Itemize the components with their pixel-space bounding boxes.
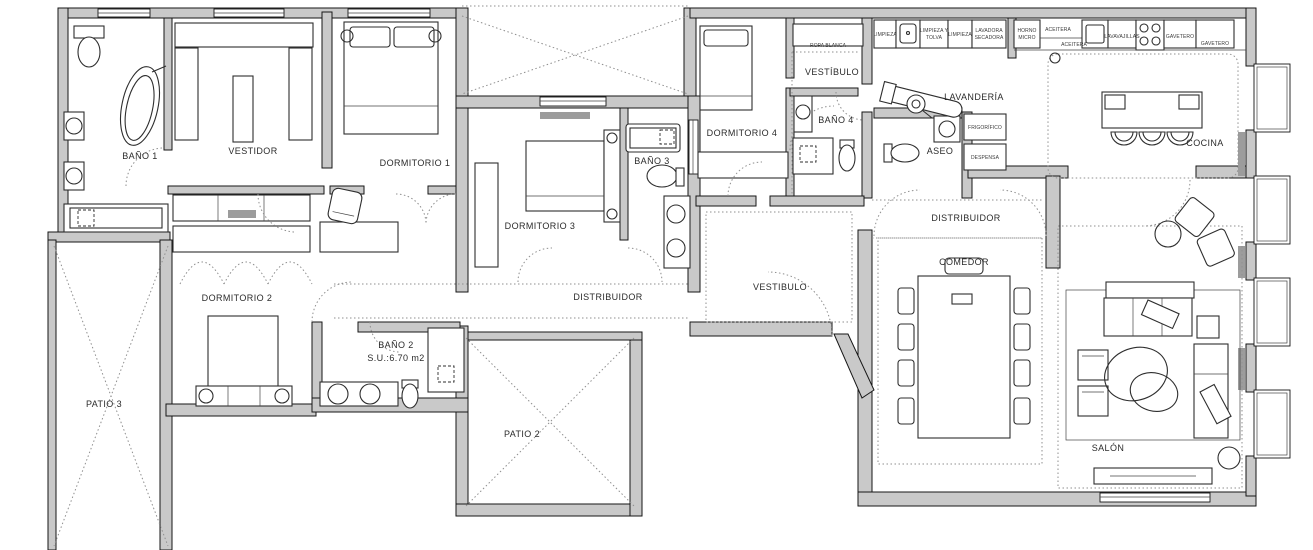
sink-icon	[64, 162, 84, 190]
window-bay	[1254, 176, 1290, 244]
cabinet-label-limpieza2: LIMPIEZA	[948, 32, 972, 38]
room-label-vestidor: VESTIDOR	[228, 146, 277, 156]
room-label-salon: SALÓN	[1092, 443, 1125, 453]
bathtub-icon	[114, 63, 166, 149]
room-label-aseo: ASEO	[927, 146, 954, 156]
toilet-icon	[74, 26, 104, 38]
room-label-vestibulo-center: VESTIBULO	[753, 282, 807, 292]
stool-icon	[1111, 132, 1137, 145]
chair-icon	[898, 398, 914, 424]
room-label-patio3: PATIO 3	[86, 399, 122, 409]
cabinet-label-gavetero1: GAVETERO	[1166, 34, 1194, 40]
toilet-icon	[647, 165, 677, 187]
room-label-dormitorio2: DORMITORIO 2	[202, 293, 273, 303]
window-bay	[1254, 278, 1290, 346]
room-label-bano1: BAÑO 1	[122, 151, 157, 161]
room-label-bano3: BAÑO 3	[634, 156, 669, 166]
rug-icon	[1126, 367, 1182, 416]
door-arc	[396, 194, 426, 224]
cabinet-label-limpieza-tolva-2: TOLVA	[926, 35, 943, 41]
chair-icon	[1014, 288, 1030, 314]
room-label-bano2-su: S.U.:6.70 m2	[367, 353, 424, 363]
cabinet-label-lavavajillas: LAVAVAJILLAS	[1104, 34, 1140, 40]
floor-plan: BAÑO 1 VESTIDOR DORMITORIO 1 DORMITORIO …	[0, 0, 1313, 550]
door-arc	[518, 248, 552, 282]
window	[214, 9, 284, 17]
closet-hatch	[698, 152, 788, 178]
chair-icon	[898, 288, 914, 314]
shower-icon	[793, 138, 833, 174]
room-label-dormitorio4: DORMITORIO 4	[707, 128, 778, 138]
chair-icon	[1014, 360, 1030, 386]
vestidor-island	[233, 76, 253, 142]
dorm1-bed-icon	[341, 22, 441, 134]
cabinet-label-horno: HORNO	[1017, 28, 1036, 34]
dorm3-bed-icon	[526, 112, 620, 222]
cabinet-label-frigorifico: FRIGORÍFICO	[968, 124, 1002, 131]
bano3-fixtures	[626, 124, 690, 268]
windows	[98, 9, 1210, 502]
walls	[48, 8, 1256, 550]
bano4-fixtures	[793, 96, 855, 174]
door-arc	[874, 190, 920, 236]
cabinet-label-limpieza1: LIMPIEZA	[873, 32, 897, 38]
window	[689, 120, 698, 174]
cabinet-label-aceitera2: ACEITERA	[1061, 42, 1087, 48]
window	[1100, 493, 1210, 502]
room-label-dormitorio1: DORMITORIO 1	[380, 158, 451, 168]
rug-icon	[1097, 339, 1175, 410]
sink-icon	[64, 112, 84, 140]
door-arc	[312, 282, 352, 322]
closet-hatch	[173, 226, 310, 252]
window-bay	[1254, 390, 1290, 458]
room-label-distribuidor-right: DISTRIBUIDOR	[931, 213, 1000, 223]
cabinet-label-despensa: DESPENSA	[971, 155, 1000, 161]
bano1-fixtures	[64, 26, 168, 232]
chair-icon	[1014, 398, 1030, 424]
lounge-chair-icon	[1174, 196, 1216, 238]
patio3-cross	[54, 246, 168, 546]
cabinet-label-aceitera1: ACEITERA	[1045, 27, 1071, 33]
closet-hatch	[289, 48, 312, 140]
door-arc	[1000, 190, 1046, 236]
window	[98, 9, 150, 17]
dining-table-icon	[918, 276, 1010, 438]
cabinet-label-gavetero2: GAVETERO	[1201, 41, 1229, 47]
dorm4-bed-icon	[700, 26, 752, 110]
closet-hatch	[475, 163, 498, 267]
patio-top-cross	[462, 6, 688, 94]
cabinet-label-micro: MICRO	[1018, 35, 1035, 41]
sink-icon	[934, 116, 960, 142]
desk-icon	[320, 187, 398, 252]
closet-hatch	[175, 23, 313, 47]
room-label-patio2: PATIO 2	[504, 429, 540, 439]
door-arc	[628, 248, 662, 282]
room-label-lavanderia: LAVANDERÍA	[944, 92, 1004, 102]
door-arc	[426, 194, 456, 224]
hob-icon	[1136, 20, 1164, 50]
floor-plan-drawing: BAÑO 1 VESTIDOR DORMITORIO 1 DORMITORIO …	[0, 0, 1313, 550]
cabinet-label-ropa-blanca: ROPA BLANCA	[810, 43, 847, 49]
armchair-icon	[1078, 386, 1108, 416]
lounge-chair-icon	[1196, 228, 1236, 268]
cabinet-label-secadora: SECADORA	[975, 35, 1004, 41]
window	[540, 97, 606, 106]
cabinet-label-limpieza-tolva-1: LIMPIEZA Y	[920, 28, 949, 34]
chair-icon	[898, 360, 914, 386]
curtain	[1238, 132, 1245, 176]
dining-set	[898, 258, 1030, 438]
room-label-cocina: COCINA	[1186, 138, 1223, 148]
salon-furniture	[1066, 196, 1240, 484]
patio2-cross	[466, 338, 634, 506]
cabinet-label-lavadora: LAVADORA	[975, 28, 1003, 34]
console	[1106, 282, 1194, 298]
room-label-vestibulo-top: VESTÍBULO	[805, 67, 859, 77]
window-bay	[1254, 64, 1290, 132]
chair-icon	[1014, 324, 1030, 350]
stool-icon	[1139, 132, 1165, 145]
closet-hatch	[175, 48, 198, 140]
window	[348, 9, 430, 17]
room-label-distribuidor-left: DISTRIBUIDOR	[573, 292, 642, 302]
room-label-dormitorio3: DORMITORIO 3	[505, 221, 576, 231]
dorm2-bed-icon	[196, 316, 292, 406]
wardrobe-arcs	[180, 262, 312, 284]
side-table	[1197, 316, 1219, 338]
round-table	[1155, 221, 1181, 247]
room-label-comedor: COMEDOR	[939, 257, 989, 267]
round-table	[1218, 447, 1240, 469]
chair-icon	[898, 324, 914, 350]
room-label-bano4: BAÑO 4	[818, 115, 853, 125]
room-label-bano2: BAÑO 2	[378, 340, 413, 350]
armchair-icon	[1078, 350, 1108, 380]
